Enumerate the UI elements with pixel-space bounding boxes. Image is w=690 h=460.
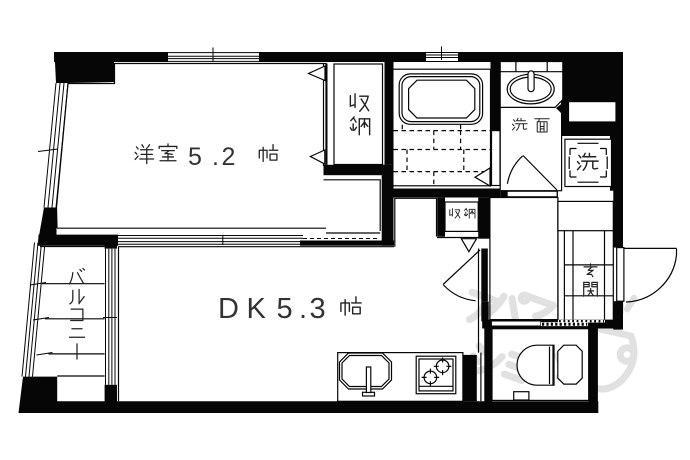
- svg-text:3: 3: [310, 293, 326, 325]
- svg-text:D: D: [218, 293, 239, 325]
- svg-text:5: 5: [277, 293, 293, 325]
- svg-text:2: 2: [222, 143, 236, 171]
- svg-text:.: .: [299, 293, 307, 325]
- svg-text:.: .: [212, 143, 219, 171]
- svg-text:K: K: [247, 293, 267, 325]
- svg-text:5: 5: [188, 143, 202, 171]
